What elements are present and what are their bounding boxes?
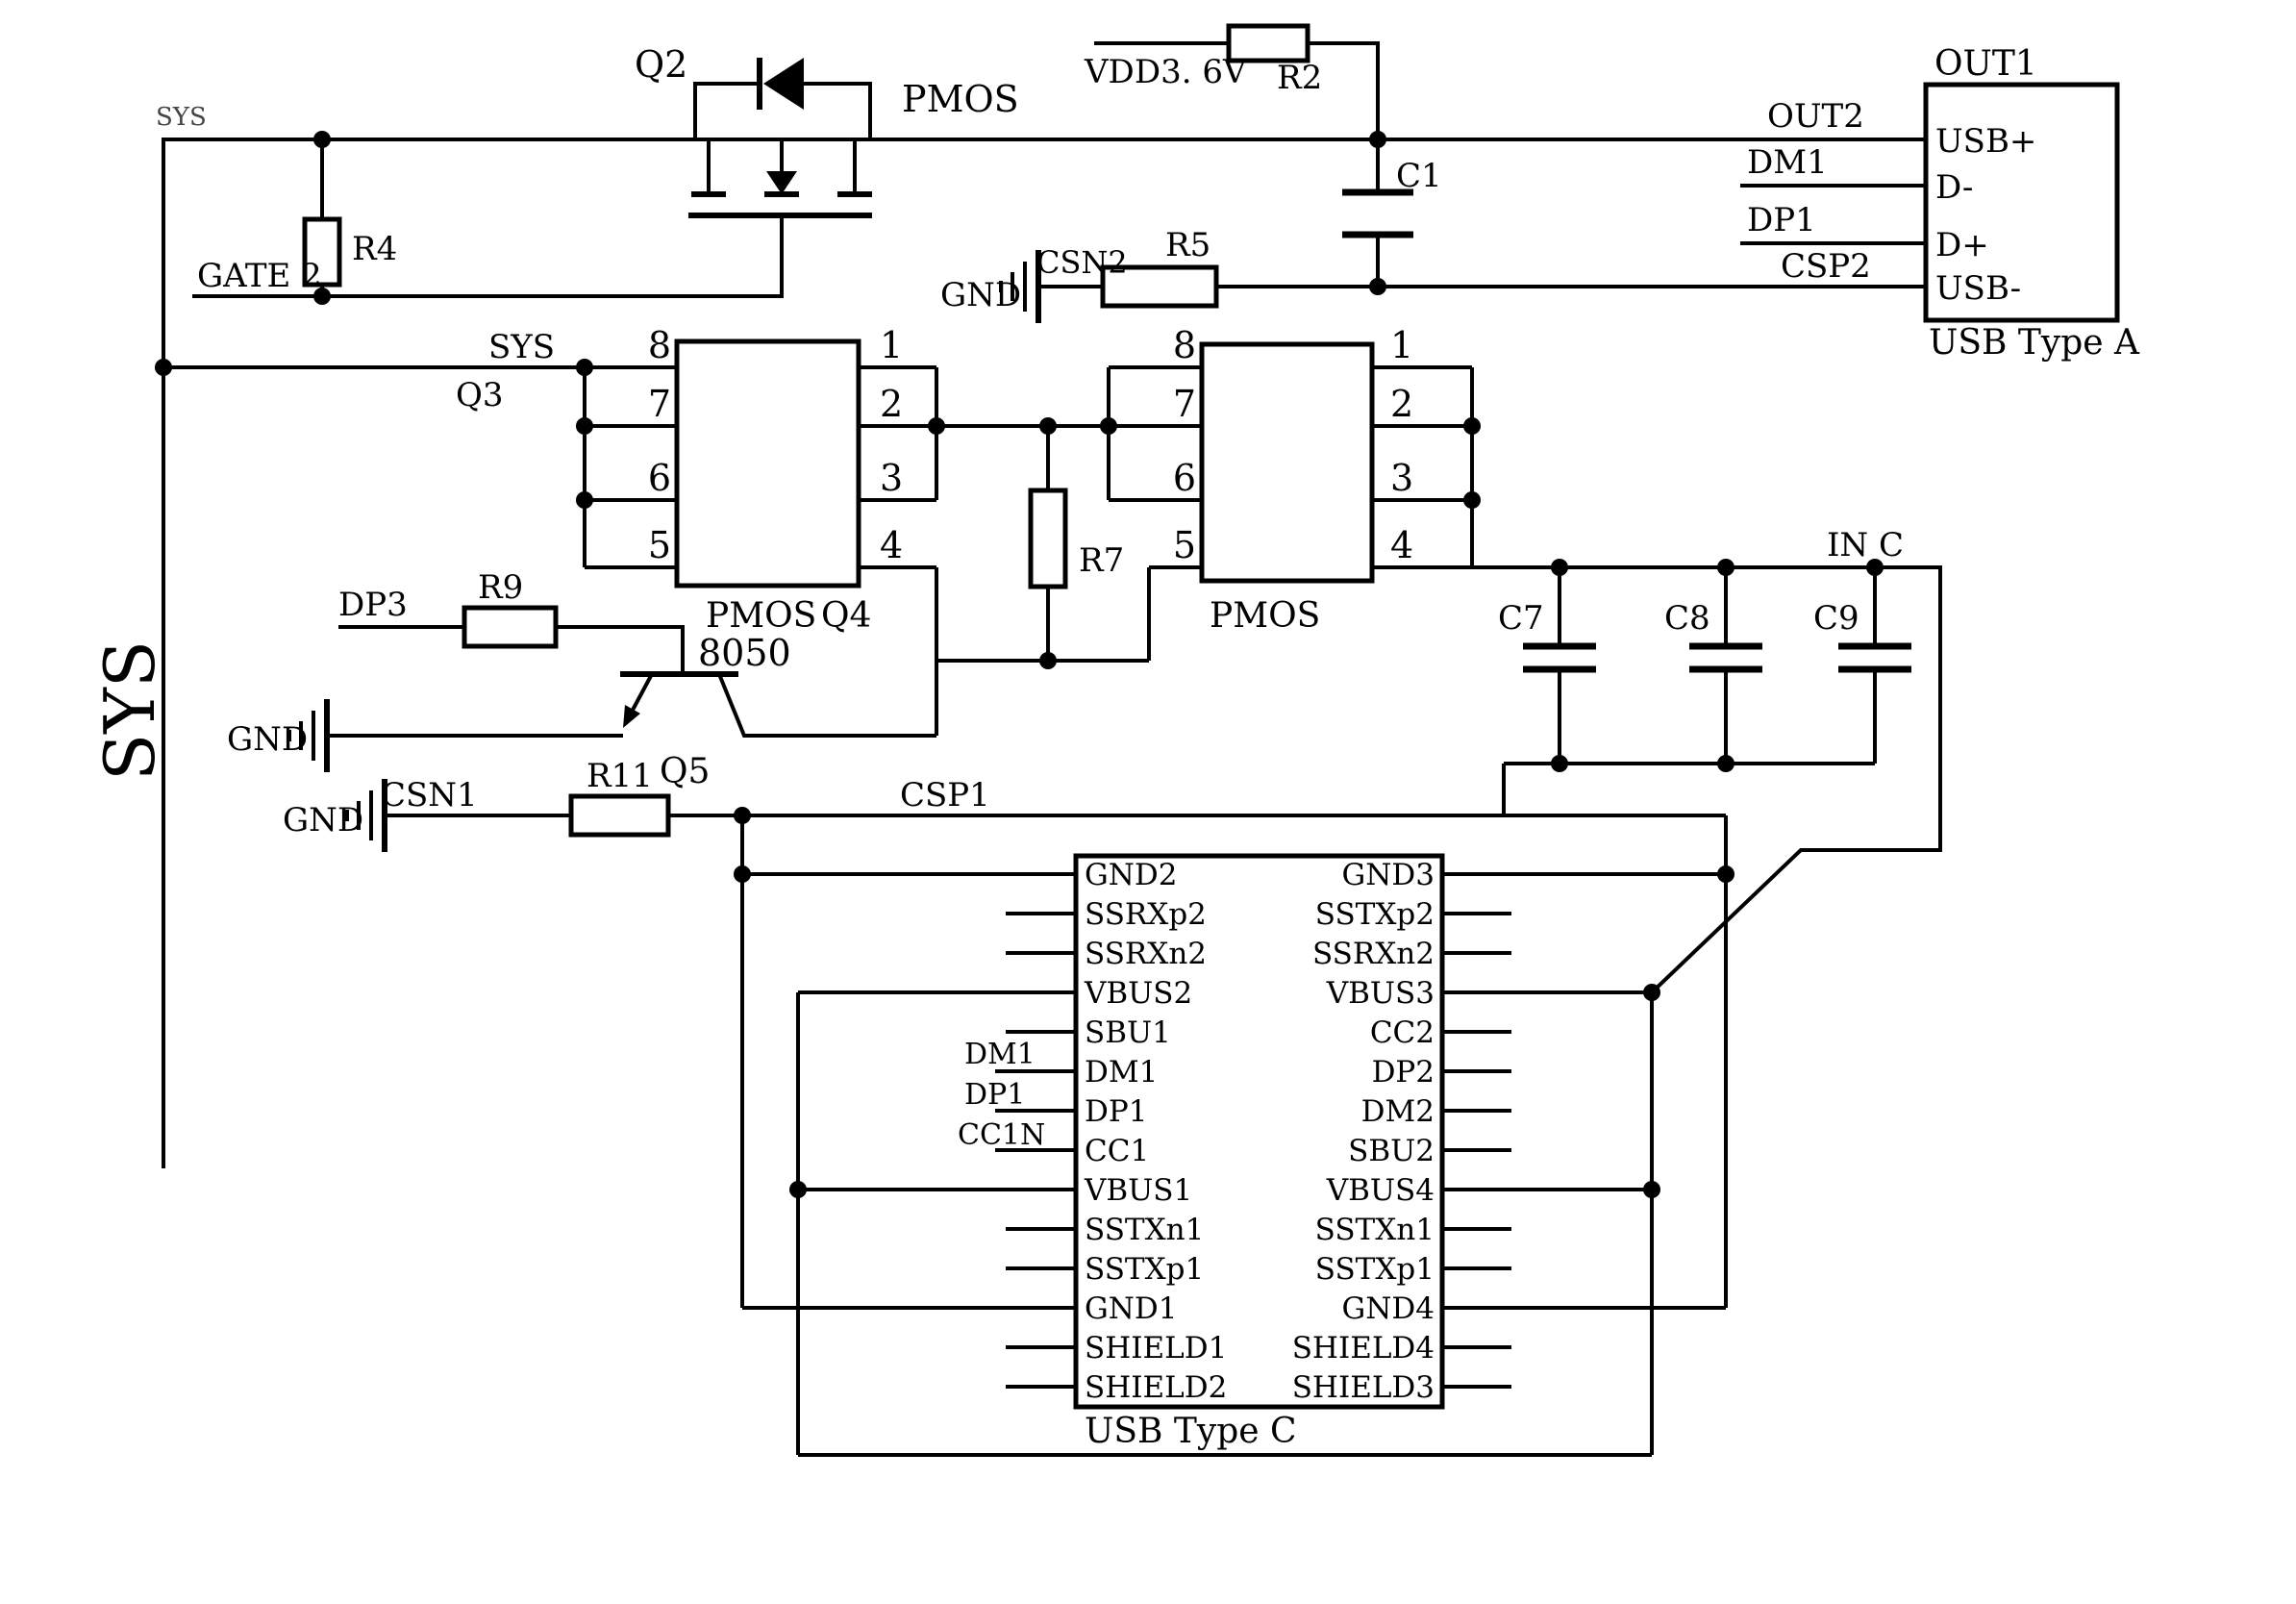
net-label-csp1: CSP1 bbox=[900, 776, 990, 815]
designator-c9: C9 bbox=[1813, 599, 1859, 638]
junction-dot bbox=[928, 417, 945, 435]
gnd-label-csn2: GND bbox=[940, 276, 1021, 314]
net-label-sys-chip: SYS bbox=[488, 328, 555, 366]
junction-dot bbox=[1039, 417, 1057, 435]
type-label-q2-pmos: PMOS bbox=[902, 78, 1019, 120]
junction-dot bbox=[576, 491, 593, 509]
net-label-csn1: CSN1 bbox=[381, 776, 478, 815]
designator-r5: R5 bbox=[1165, 226, 1210, 264]
junction-dot bbox=[1717, 755, 1734, 772]
net-label-inc: IN C bbox=[1827, 526, 1904, 564]
designator-r11: R11 bbox=[586, 757, 653, 795]
q3-pin-number-8: 8 bbox=[648, 324, 671, 366]
q3-pin-number-4: 4 bbox=[880, 524, 903, 566]
junction-dot bbox=[1463, 417, 1481, 435]
net-label-dp1-ext: DP1 bbox=[964, 1078, 1025, 1112]
usbc-pin-cc2: CC2 bbox=[1370, 1015, 1435, 1050]
usbc-pin-cc1: CC1 bbox=[1085, 1134, 1149, 1168]
net-label-sys-vertical: SYS bbox=[89, 640, 170, 781]
usbc-pin-gnd1: GND1 bbox=[1085, 1291, 1177, 1326]
cap-plates bbox=[1523, 646, 1911, 669]
designator-r9: R9 bbox=[478, 568, 523, 607]
designator-q3: Q3 bbox=[456, 376, 504, 414]
usbc-pin-shield4: SHIELD4 bbox=[1292, 1331, 1435, 1366]
net-label-gate2: GATE 2 bbox=[197, 257, 322, 295]
usbc-pin-sbu2: SBU2 bbox=[1348, 1134, 1435, 1168]
junction-dot bbox=[1717, 559, 1734, 576]
usb-c-title: USB Type C bbox=[1085, 1412, 1297, 1451]
usbc-pin-shield2: SHIELD2 bbox=[1085, 1370, 1227, 1405]
usbc-pin-dp2: DP2 bbox=[1372, 1055, 1435, 1090]
wire-q5-collector bbox=[719, 674, 936, 736]
designator-c7: C7 bbox=[1498, 599, 1544, 638]
net-label-out2: OUT2 bbox=[1767, 97, 1864, 136]
usbc-pin-dp1: DP1 bbox=[1085, 1094, 1147, 1129]
usbc-pin-sstxn1-l: SSTXn1 bbox=[1085, 1213, 1204, 1247]
junction-dot bbox=[576, 359, 593, 376]
usbc-pin-vbus4: VBUS4 bbox=[1326, 1173, 1435, 1208]
junction-dot bbox=[1551, 559, 1568, 576]
usbc-pin-sstxp1-l: SSTXp1 bbox=[1085, 1252, 1204, 1287]
usb-a-pin-dplus: D+ bbox=[1935, 226, 1989, 264]
junction-dot bbox=[1463, 491, 1481, 509]
wire-q4-right-bracket bbox=[1372, 367, 1472, 567]
wire-q5-emitter bbox=[631, 674, 652, 714]
usbc-pin-vbus1: VBUS1 bbox=[1084, 1173, 1192, 1208]
junction-dot bbox=[1369, 131, 1386, 148]
net-label-dm1-ext: DM1 bbox=[964, 1038, 1036, 1071]
type-label-q3-pmos: PMOS bbox=[706, 596, 816, 636]
net-label-csp2: CSP2 bbox=[1781, 247, 1871, 286]
usb-a-pin-usbplus: USB+ bbox=[1935, 122, 2036, 161]
usbc-pin-sstxn1-r: SSTXn1 bbox=[1315, 1213, 1435, 1247]
usbc-pin-ssrxp2: SSRXp2 bbox=[1085, 897, 1207, 932]
junction-dot bbox=[1100, 417, 1117, 435]
designator-r2: R2 bbox=[1277, 59, 1322, 97]
usbc-pin-dm2: DM2 bbox=[1361, 1094, 1435, 1129]
junction-dot bbox=[1643, 984, 1660, 1001]
q3-pin-number-5: 5 bbox=[648, 524, 671, 566]
q4-pin-number-4: 4 bbox=[1390, 524, 1413, 566]
junction-dot bbox=[734, 807, 751, 824]
r9-body bbox=[464, 608, 556, 646]
junction-dot bbox=[1369, 278, 1386, 295]
junction-dot bbox=[734, 865, 751, 883]
net-label-dp3: DP3 bbox=[338, 586, 408, 624]
usbc-pin-sbu1: SBU1 bbox=[1085, 1015, 1171, 1050]
usbc-pin-dm1: DM1 bbox=[1085, 1055, 1158, 1090]
usbc-pin-ssrxn2-r: SSRXn2 bbox=[1312, 937, 1435, 971]
usbc-pin-gnd2: GND2 bbox=[1085, 858, 1177, 892]
junction-dot bbox=[1643, 1181, 1660, 1198]
q4-pin-number-2: 2 bbox=[1390, 383, 1413, 425]
usb-a-pin-dminus: D- bbox=[1935, 168, 1973, 207]
q4-pin-number-1: 1 bbox=[1390, 324, 1413, 366]
usbc-pin-sstxp2: SSTXp2 bbox=[1315, 897, 1435, 932]
gnd-label-csn1: GND bbox=[283, 801, 363, 840]
designator-c8: C8 bbox=[1664, 599, 1710, 638]
net-label-dm1-top: DM1 bbox=[1747, 143, 1828, 182]
designator-q5: Q5 bbox=[660, 752, 710, 791]
junction-dot bbox=[576, 417, 593, 435]
usbc-pin-gnd4: GND4 bbox=[1342, 1291, 1435, 1326]
designator-q4: Q4 bbox=[821, 596, 871, 636]
gnd-label-q5: GND bbox=[227, 720, 308, 759]
designator-c1: C1 bbox=[1396, 157, 1442, 195]
designator-r4: R4 bbox=[352, 230, 397, 268]
net-label-dp1-top: DP1 bbox=[1747, 201, 1816, 239]
r11-body bbox=[571, 796, 668, 835]
usbc-pin-shield1: SHIELD1 bbox=[1085, 1331, 1227, 1366]
r7-body bbox=[1031, 490, 1065, 587]
net-label-vdd: VDD3. 6V bbox=[1084, 53, 1248, 91]
net-label-cc1n: CC1N bbox=[958, 1118, 1045, 1152]
q2-diode-triangle bbox=[763, 58, 804, 110]
chip-q3-body bbox=[677, 341, 859, 586]
q2-mosfet-arrow bbox=[766, 171, 797, 194]
wire-csn1-csp1 bbox=[385, 815, 1726, 1308]
usbc-pin-shield3: SHIELD3 bbox=[1292, 1370, 1435, 1405]
circuit-schematic: SYS SYS GATE 2 Q2 PMOS R4 VDD3. 6V R2 C1… bbox=[0, 0, 2296, 1604]
usbc-pin-vbus3: VBUS3 bbox=[1326, 976, 1435, 1011]
junction-dot bbox=[313, 131, 331, 148]
q4-pin-number-6: 6 bbox=[1173, 457, 1196, 499]
designator-q2: Q2 bbox=[635, 43, 687, 86]
q4-pin-number-7: 7 bbox=[1173, 383, 1196, 425]
junction-dot bbox=[789, 1181, 807, 1198]
usbc-pin-ssrxn2: SSRXn2 bbox=[1085, 937, 1207, 971]
wire-gate-node bbox=[936, 567, 1202, 661]
usbc-pin-sstxp1-r: SSTXp1 bbox=[1315, 1252, 1435, 1287]
junction-dot bbox=[1039, 652, 1057, 669]
usbc-pin-gnd3: GND3 bbox=[1342, 858, 1435, 892]
q4-pin-number-8: 8 bbox=[1173, 324, 1196, 366]
q3-pin-number-7: 7 bbox=[648, 383, 671, 425]
junction-dot bbox=[1551, 755, 1568, 772]
type-label-q4-pmos: PMOS bbox=[1210, 596, 1320, 636]
c1-plates bbox=[1342, 192, 1413, 235]
net-label-sys-small: SYS bbox=[156, 103, 207, 132]
net-label-csn2: CSN2 bbox=[1036, 244, 1128, 281]
q3-pin-number-6: 6 bbox=[648, 457, 671, 499]
type-label-8050: 8050 bbox=[698, 632, 791, 674]
net-label-out1: OUT1 bbox=[1934, 44, 2037, 84]
usb-a-title: USB Type A bbox=[1929, 323, 2140, 363]
q3-pin-number-2: 2 bbox=[880, 383, 903, 425]
designator-r7: R7 bbox=[1079, 541, 1124, 580]
junction-dot bbox=[1717, 865, 1734, 883]
q3-pin-number-1: 1 bbox=[880, 324, 903, 366]
schematic-page: SYS SYS GATE 2 Q2 PMOS R4 VDD3. 6V R2 C1… bbox=[0, 0, 2296, 1604]
chip-q4-body bbox=[1202, 344, 1372, 581]
q3-pin-number-3: 3 bbox=[880, 457, 903, 499]
q4-pin-number-3: 3 bbox=[1390, 457, 1413, 499]
q4-pin-number-5: 5 bbox=[1173, 524, 1196, 566]
usb-a-pin-usbminus: USB- bbox=[1935, 269, 2021, 308]
junction-dot bbox=[155, 359, 172, 376]
usbc-pin-vbus2: VBUS2 bbox=[1084, 976, 1192, 1011]
